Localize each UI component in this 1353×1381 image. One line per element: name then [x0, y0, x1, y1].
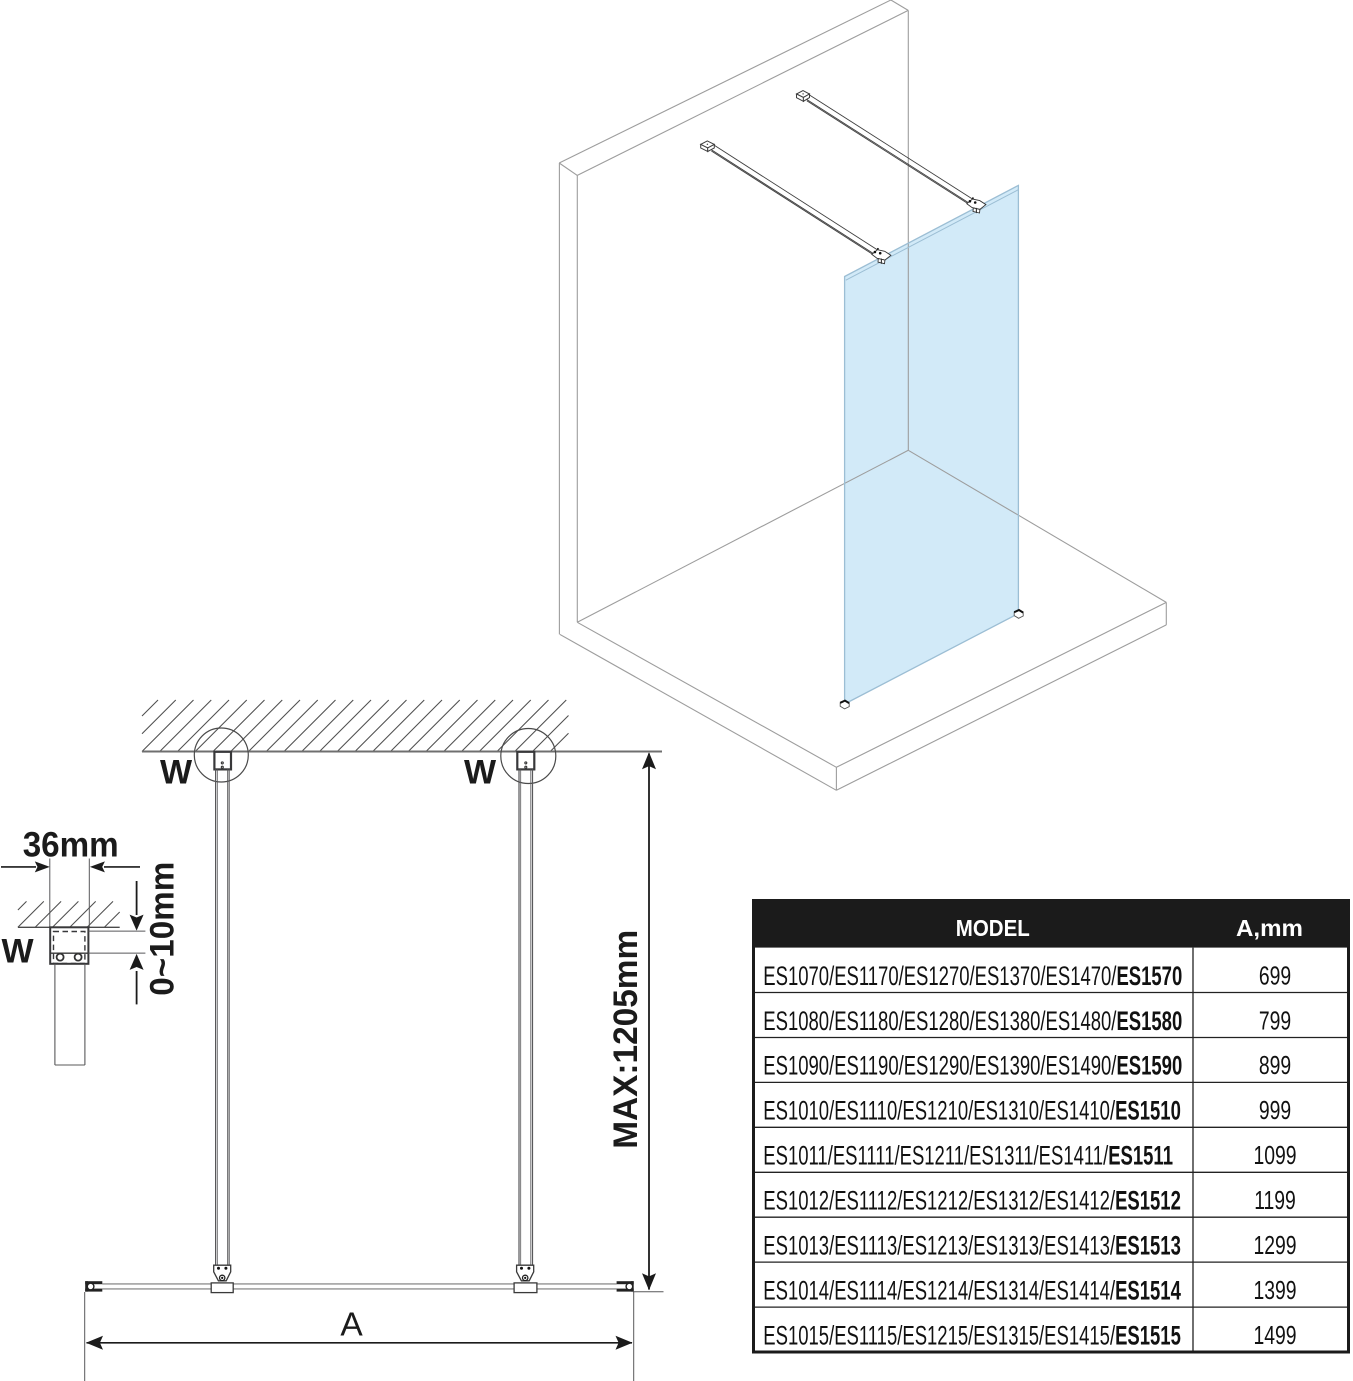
svg-text:999: 999	[1259, 1095, 1291, 1124]
svg-text:1499: 1499	[1253, 1320, 1296, 1349]
svg-text:ES1015/ES1115/ES1215/ES1315/ES: ES1015/ES1115/ES1215/ES1315/ES1415/ES151…	[763, 1320, 1181, 1350]
svg-text:699: 699	[1259, 961, 1291, 990]
svg-text:36mm: 36mm	[23, 826, 119, 865]
svg-text:1299: 1299	[1253, 1230, 1296, 1259]
svg-text:ES1012/ES1112/ES1212/ES1312/ES: ES1012/ES1112/ES1212/ES1312/ES1412/ES151…	[763, 1185, 1181, 1215]
svg-text:ES1070/ES1170/ES1270/ES1370/ES: ES1070/ES1170/ES1270/ES1370/ES1470/ES157…	[763, 960, 1182, 990]
svg-text:ES1010/ES1110/ES1210/ES1310/ES: ES1010/ES1110/ES1210/ES1310/ES1410/ES151…	[763, 1095, 1181, 1125]
svg-text:1399: 1399	[1253, 1275, 1296, 1304]
svg-text:0~10mm: 0~10mm	[144, 862, 182, 996]
svg-text:A,mm: A,mm	[1236, 915, 1303, 941]
svg-text:ES1080/ES1180/ES1280/ES1380/ES: ES1080/ES1180/ES1280/ES1380/ES1480/ES158…	[763, 1005, 1182, 1035]
svg-text:MAX:1205mm: MAX:1205mm	[607, 930, 645, 1149]
svg-text:MODEL: MODEL	[956, 915, 1030, 941]
svg-text:ES1014/ES1114/ES1214/ES1314/ES: ES1014/ES1114/ES1214/ES1314/ES1414/ES151…	[763, 1275, 1181, 1305]
svg-text:1199: 1199	[1254, 1185, 1296, 1214]
svg-text:1099: 1099	[1253, 1140, 1296, 1169]
svg-text:799: 799	[1259, 1005, 1291, 1034]
svg-text:ES1011/ES1111/ES1211/ES1311/ES: ES1011/ES1111/ES1211/ES1311/ES1411/ES151…	[763, 1140, 1173, 1170]
svg-text:ES1090/ES1190/ES1290/ES1390/ES: ES1090/ES1190/ES1290/ES1390/ES1490/ES159…	[763, 1050, 1182, 1080]
svg-text:ES1013/ES1113/ES1213/ES1313/ES: ES1013/ES1113/ES1213/ES1313/ES1413/ES151…	[763, 1230, 1181, 1260]
svg-text:W: W	[2, 933, 35, 971]
svg-text:W: W	[160, 753, 193, 791]
svg-text:A: A	[340, 1307, 363, 1344]
svg-text:W: W	[464, 753, 497, 791]
svg-text:899: 899	[1259, 1050, 1291, 1079]
